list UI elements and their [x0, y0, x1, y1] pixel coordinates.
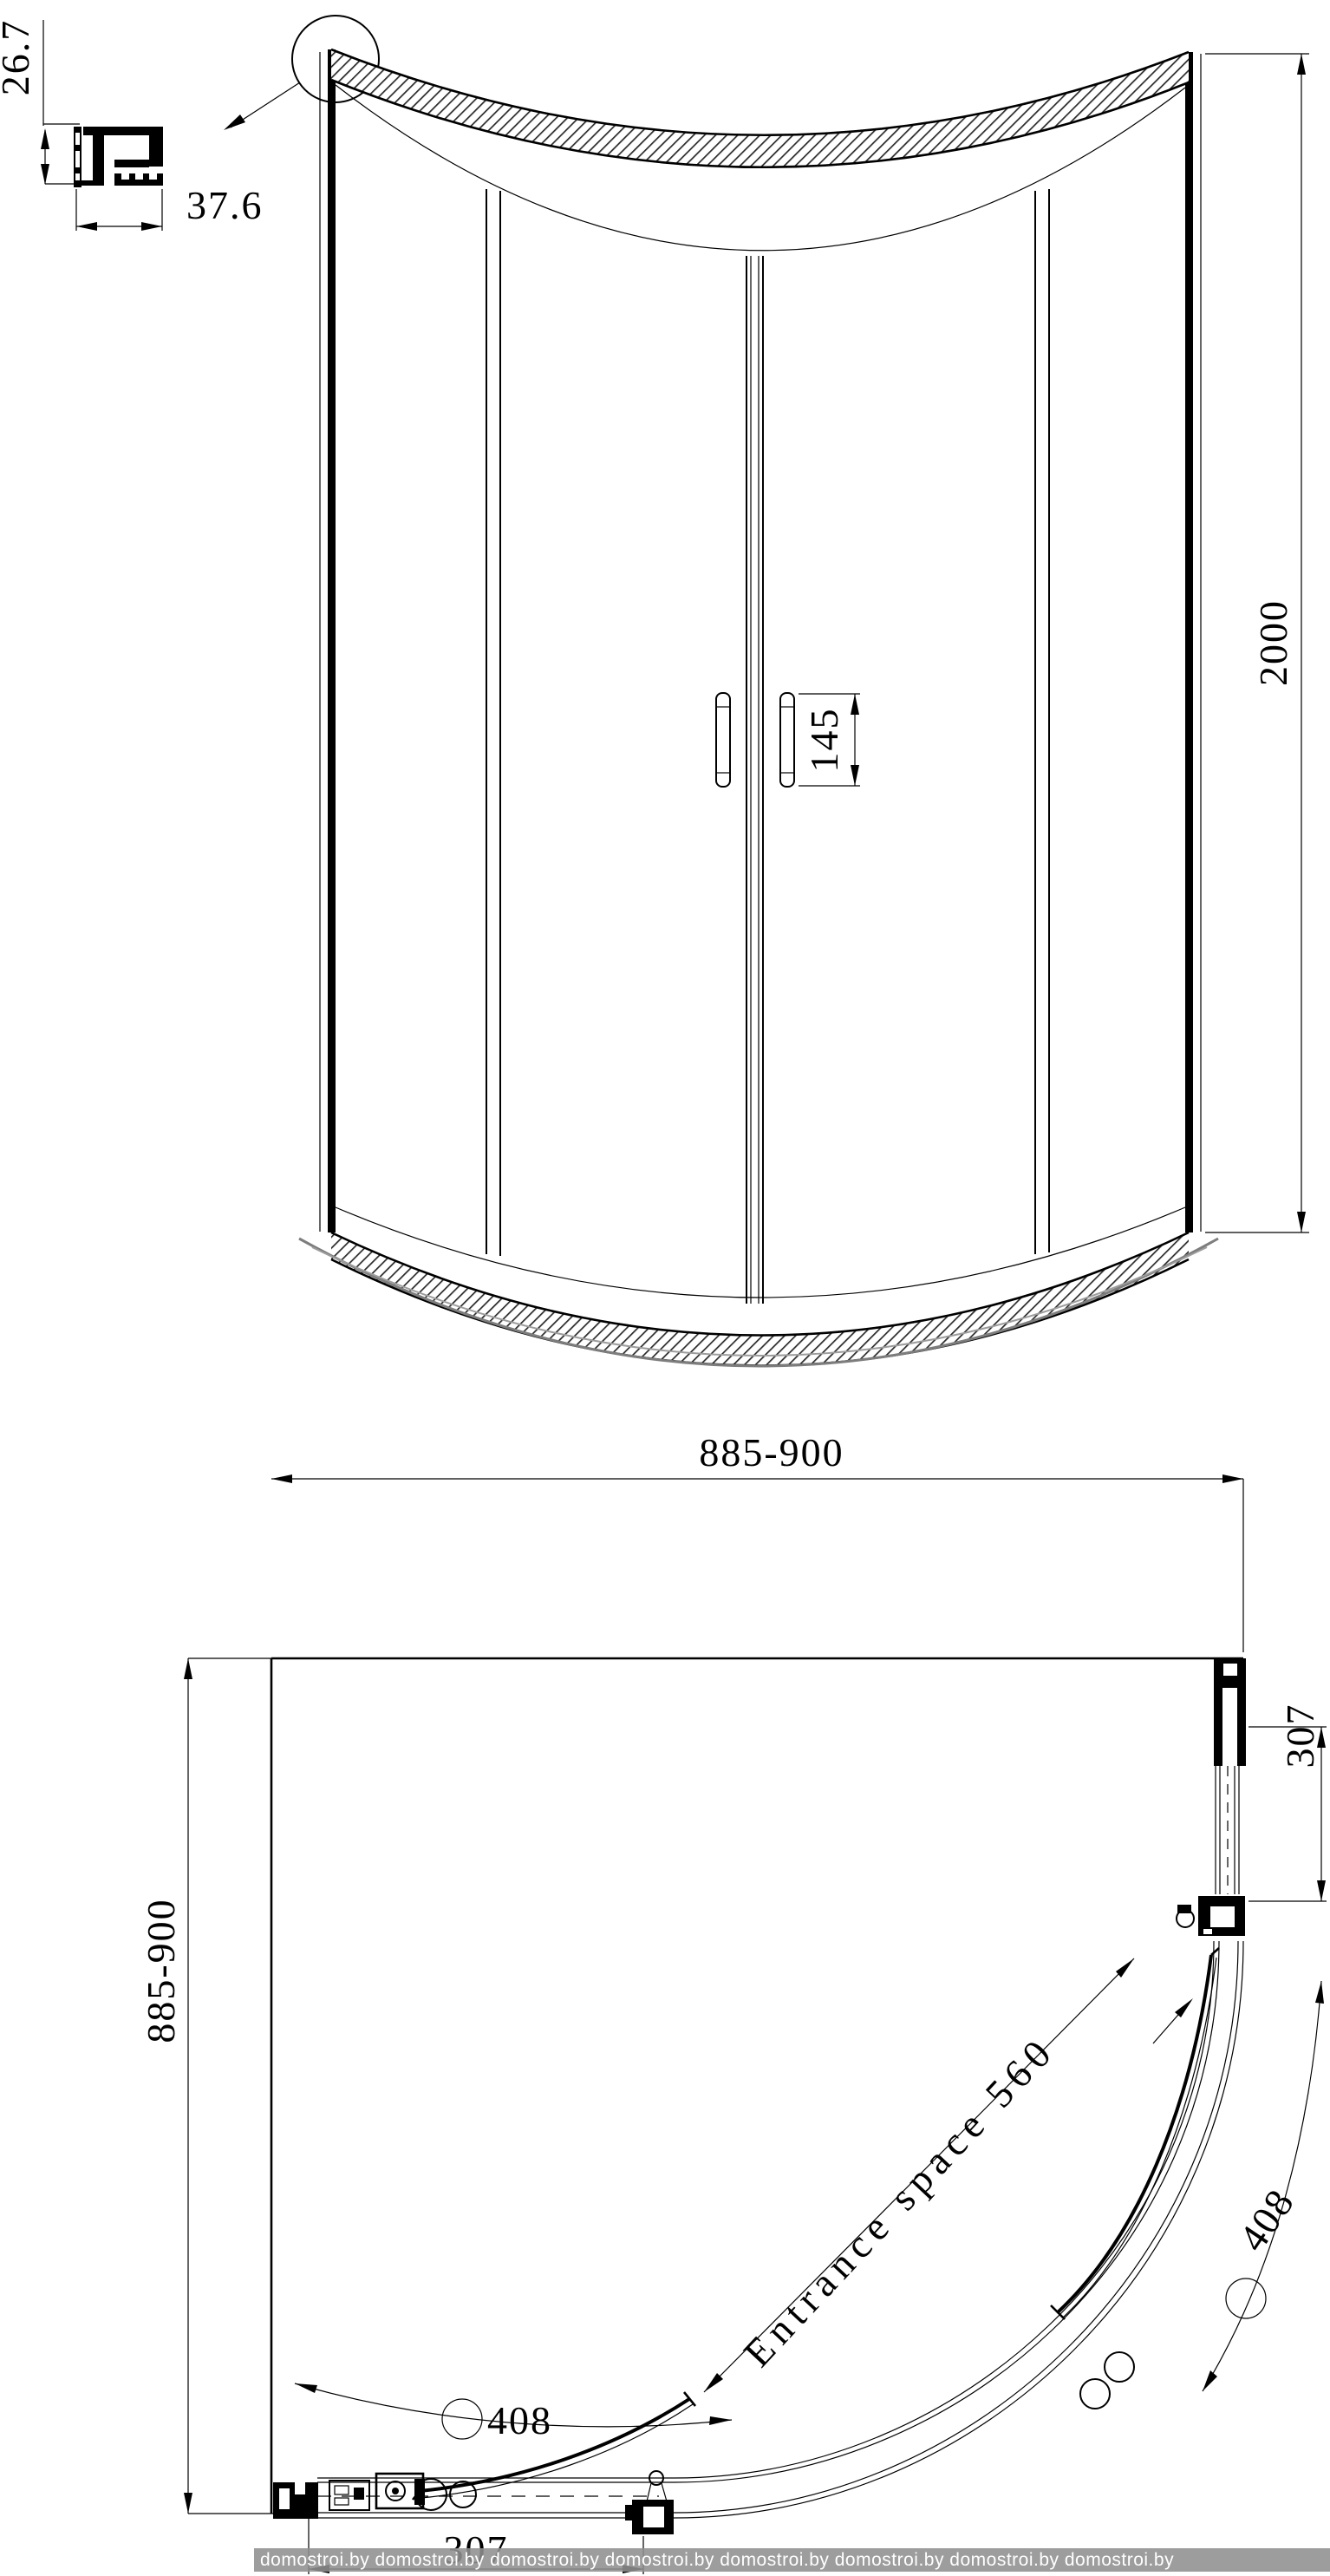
right-wall-profile	[1214, 1658, 1246, 1766]
dim-overall-height: 2000	[1251, 599, 1295, 686]
dim-2000: 2000	[1205, 54, 1309, 1232]
dim-profile-height: 26.7	[0, 19, 37, 96]
curved-track	[675, 1941, 1243, 2518]
plan-view: 885-900 885-900	[139, 1430, 1327, 2574]
detail-leader-arrow	[224, 82, 300, 130]
dim-145: 145	[799, 694, 860, 786]
roller-wheel	[1080, 2379, 1110, 2409]
dim-side-panel-right: 307	[1278, 1703, 1322, 1769]
right-corner-fitting	[1177, 1896, 1245, 1936]
diameter-symbol	[1226, 2279, 1266, 2318]
center-door-stiles	[746, 256, 763, 1304]
profile-detail-section: 26.7 37.6	[0, 16, 379, 231]
door-bottom-edge	[336, 1207, 1185, 1298]
dim-408-right: 408	[1203, 1981, 1324, 2391]
dim-entrance-space-text: Entrance space 560	[735, 2027, 1064, 2376]
dim-26-7: 26.7	[0, 19, 80, 185]
shower-enclosure-drawing-page: 26.7 37.6	[0, 0, 1330, 2576]
dim-profile-width: 37.6	[186, 183, 264, 227]
right-post	[1185, 52, 1193, 1232]
dim-door-arc-right: 408	[1230, 2180, 1303, 2259]
dim-plan-depth-text: 885-900	[139, 1898, 183, 2043]
left-door-roller-carriage	[329, 2474, 476, 2510]
right-door-handle	[780, 693, 794, 787]
bottom-left-wall-profile	[273, 2482, 318, 2519]
watermark-text: domostroi.by domostroi.by domostroi.by d…	[260, 2550, 1174, 2570]
center-bottom-fitting	[625, 2471, 674, 2534]
left-post	[328, 49, 336, 1232]
dim-37-6: 37.6	[76, 183, 264, 231]
top-rail	[331, 49, 1189, 167]
dim-plan-depth: 885-900	[139, 1658, 273, 2514]
roller-wheel	[1105, 2352, 1134, 2382]
front-view: 145 2000	[299, 49, 1309, 1366]
technical-drawing: 26.7 37.6	[0, 0, 1330, 2576]
dim-handle-length: 145	[802, 708, 846, 773]
dim-plan-width: 885-900	[271, 1430, 1243, 1652]
dim-plan-width-text: 885-900	[699, 1430, 844, 1474]
right-fixed-panel	[1216, 1766, 1239, 1894]
left-door-handle	[716, 693, 730, 787]
dim-entrance-space: Entrance space 560	[704, 1958, 1193, 2392]
aluminium-profile-section	[74, 127, 163, 187]
dim-307-right: 307	[1249, 1703, 1327, 1902]
right-door-stile	[1035, 189, 1049, 1254]
watermark-strip: domostroi.by domostroi.by domostroi.by d…	[254, 2548, 1330, 2572]
left-door-stile	[486, 189, 500, 1256]
bottom-track	[317, 2478, 675, 2518]
dim-door-arc-left: 408	[487, 2398, 552, 2442]
